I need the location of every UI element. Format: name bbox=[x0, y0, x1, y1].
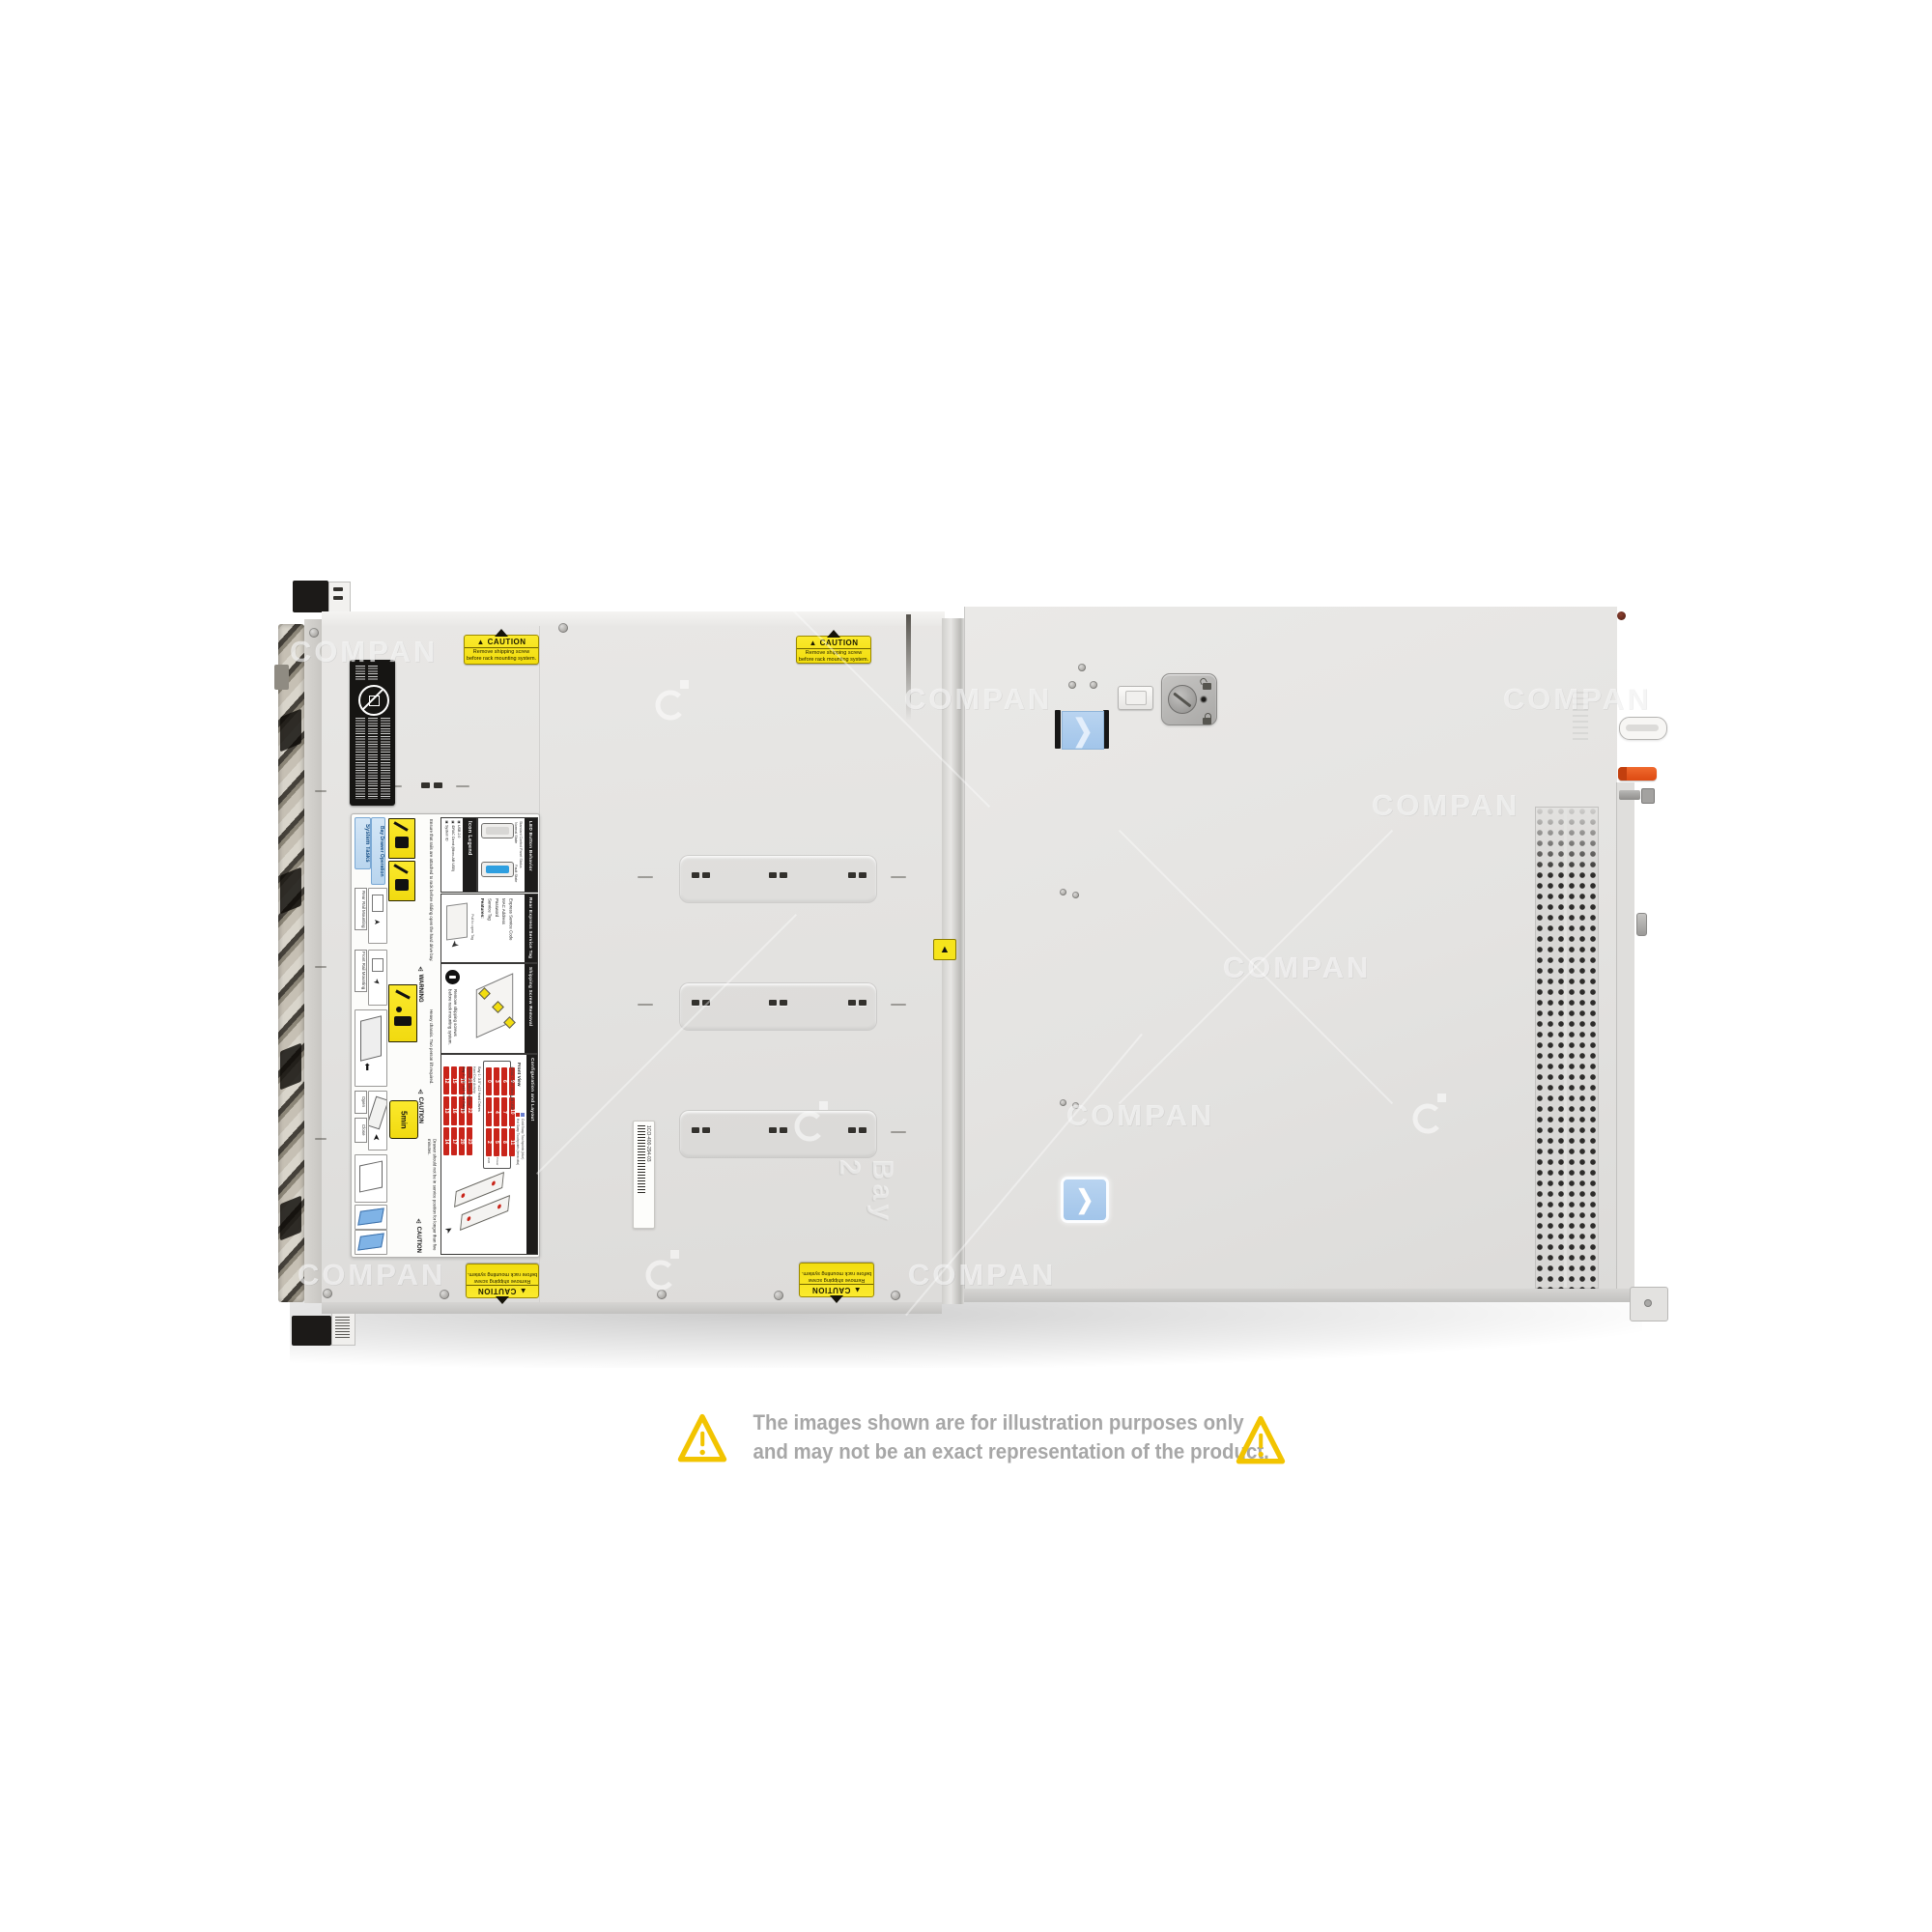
cover-screw bbox=[1078, 664, 1086, 671]
warning-triangle-icon: ▲ bbox=[476, 638, 484, 646]
sticker-pointer bbox=[496, 1296, 509, 1304]
drawer-release-latch: ❯ bbox=[1055, 708, 1109, 751]
step-art: ⬆ bbox=[355, 1009, 387, 1087]
rear-tag-header: Rear Express Service Tag bbox=[525, 895, 537, 962]
bezel-gap bbox=[280, 1196, 301, 1241]
config-side-label: Hard Drive Activity bbox=[472, 1066, 476, 1155]
chevron-right-icon: ❯ bbox=[1072, 712, 1094, 748]
drive-number-cell: 17 bbox=[451, 1127, 457, 1155]
latch-button-blue: ❯ bbox=[1062, 711, 1104, 750]
rack-ear-top bbox=[293, 581, 328, 612]
drive-number-cell: 3 bbox=[494, 1067, 499, 1095]
drive-number-cell: 15 bbox=[451, 1066, 457, 1094]
bezel-latch bbox=[274, 665, 289, 690]
cover-screw bbox=[1068, 681, 1076, 689]
bay1-label: Bay 1: 3.5" x12 Hard Drives bbox=[477, 1066, 481, 1155]
barcode-lines bbox=[638, 1125, 645, 1193]
drive-number-cell: 1 bbox=[486, 1097, 492, 1125]
config-side-label: System ID/Status Light Bar bbox=[468, 1066, 471, 1155]
watermark-text: COMPAN bbox=[298, 1258, 445, 1293]
cover-release-button: ❯ bbox=[1061, 1177, 1109, 1223]
watermark-ci-logo bbox=[792, 1099, 831, 1146]
cover-bottom-wall bbox=[964, 1289, 1634, 1302]
config-side-label: USB bbox=[487, 1157, 491, 1167]
front-bezel bbox=[278, 624, 304, 1302]
icon-legend-items: ▣ System ID▣ iDRAC Direct (Micro-AB USB)… bbox=[443, 820, 461, 890]
caution-sticker-flipped: ▲ CAUTION Remove shipping screwbefore ra… bbox=[799, 1263, 874, 1297]
config-iso-sketch: ➤ bbox=[445, 1173, 513, 1248]
step-art: ➤ bbox=[368, 888, 387, 944]
lid-hinge-gap bbox=[942, 618, 964, 1304]
five-min-badge: 5min bbox=[389, 1100, 418, 1139]
lid-slot-pair bbox=[434, 782, 442, 788]
section-shipping-screw: Remove shipping screws before rack mount… bbox=[440, 963, 538, 1054]
drive-number-cell: 13 bbox=[443, 1096, 449, 1124]
bay1-panel: 01234567891011 USB Power bbox=[483, 1061, 511, 1169]
warning-triangle-icon bbox=[676, 1408, 728, 1470]
led-bar-blue bbox=[481, 862, 514, 877]
cover-slider-latch bbox=[1118, 686, 1153, 710]
config-side-label: Power bbox=[496, 1157, 499, 1167]
screw bbox=[774, 1291, 783, 1300]
watermark-text: COMPAN bbox=[1066, 1098, 1214, 1133]
cover-screw bbox=[1072, 892, 1079, 898]
regulatory-label bbox=[350, 660, 395, 806]
lid-dash bbox=[315, 1138, 327, 1140]
led-bar-normal bbox=[481, 823, 514, 838]
padlock-unlocked-icon bbox=[1203, 683, 1211, 690]
prohibition-circle-icon bbox=[358, 685, 389, 716]
vent-slot-row bbox=[638, 855, 918, 901]
section-icon-legend: ▣ System ID▣ iDRAC Direct (Micro-AB USB)… bbox=[440, 817, 477, 893]
rear-vent-grid bbox=[1535, 807, 1599, 1289]
label-header-system-tasks: System Tasks bbox=[355, 817, 371, 869]
config-front-view: Front View bbox=[516, 1063, 521, 1111]
bezel-gap bbox=[280, 867, 301, 915]
service-instruction-label: System Tasks Bay Drawer Operation Rear R… bbox=[351, 813, 540, 1258]
step-open: Open bbox=[355, 1091, 367, 1114]
warning-triangle-icon: ▲ bbox=[519, 1287, 526, 1295]
drive-number-cell: 5 bbox=[494, 1128, 499, 1156]
shipping-sketch bbox=[469, 970, 521, 1047]
product-photo-canvas: ▲ CAUTION Remove shipping screwbefore ra… bbox=[0, 0, 1932, 1932]
icon-legend-item: ▣ System ID bbox=[443, 820, 448, 890]
hot-swap-swatch bbox=[516, 1113, 520, 1117]
psu-handle bbox=[1619, 717, 1667, 740]
pinch-hazard-icon bbox=[388, 818, 415, 859]
rack-ear-bottom bbox=[292, 1316, 331, 1346]
chevron-right-icon: ❯ bbox=[1076, 1184, 1094, 1214]
shipping-header: Shipping Screw Removal bbox=[525, 964, 537, 1053]
caution-sticker: ▲ CAUTION Remove shipping screwbefore ra… bbox=[464, 635, 539, 665]
section-led-behavior: Normal State Fault State Standard Contro… bbox=[477, 817, 538, 893]
keylock-screw bbox=[1168, 685, 1197, 714]
watermark-text: COMPAN bbox=[904, 682, 1052, 717]
warning-triangle-icon: ▲ bbox=[940, 944, 951, 955]
label-header-bay-drawer: Bay Drawer Operation bbox=[371, 817, 385, 885]
icon-legend-header: Icon Legend bbox=[463, 818, 476, 892]
rear-bracket-foot bbox=[1630, 1287, 1668, 1321]
vent-slot-row bbox=[638, 982, 918, 1029]
warning-triangle-icon: ▲ bbox=[853, 1286, 861, 1294]
drive-number-cell: 7 bbox=[501, 1097, 507, 1125]
shipping-body: Remove shipping screws before rack mount… bbox=[447, 989, 458, 1049]
config-side-label: iDRAC Direct (Micro-AB USB) bbox=[510, 1066, 514, 1155]
cover-screw bbox=[1090, 681, 1097, 689]
watermark-ci-logo bbox=[653, 678, 692, 724]
cover-keylock bbox=[1161, 673, 1217, 725]
drive-number-cell: 8 bbox=[501, 1128, 507, 1156]
step-art-drawer-blue bbox=[355, 1230, 387, 1255]
cover-screw bbox=[1060, 889, 1066, 895]
step-rear-rail: Rear Rail Mounting bbox=[355, 888, 367, 930]
tag-sketch: ➤ bbox=[444, 900, 469, 956]
lid-dash bbox=[456, 785, 469, 787]
step-art: ➤ bbox=[368, 950, 387, 1006]
step-art bbox=[355, 1154, 387, 1203]
led-state-fault: Fault State bbox=[514, 865, 518, 892]
warning-triangle-icon bbox=[1235, 1410, 1287, 1472]
padlock-locked-icon bbox=[1203, 718, 1211, 724]
config-header: Configuration and Layout bbox=[526, 1055, 537, 1254]
tag-features: Features: Service Tag Password MAC Addre… bbox=[480, 898, 523, 958]
icon-legend-item: ▣ USB 2.0 bbox=[456, 820, 461, 890]
led-subtitle: Standard Control Panel Status bbox=[519, 821, 523, 891]
section-rear-tag: ➤ Pull to open Tag Features: Service Tag… bbox=[440, 894, 538, 963]
pinch-hazard-icon bbox=[388, 861, 415, 901]
screw bbox=[891, 1291, 900, 1300]
drive-number-cell: 16 bbox=[451, 1096, 457, 1124]
embossed-bay2-text: Bay 2 bbox=[833, 1159, 898, 1256]
watermark-ci-logo bbox=[643, 1248, 682, 1294]
tag-note: Pull to open Tag bbox=[470, 914, 474, 952]
cover-screw bbox=[1060, 1099, 1066, 1106]
label-caution-heavy-text: ⚠ CAUTION Heavy chassis. Two person lift… bbox=[417, 1008, 440, 1127]
bezel-gap bbox=[280, 709, 301, 753]
rear-metal-latch bbox=[1619, 788, 1654, 803]
chassis-top-wall bbox=[322, 611, 945, 627]
config-legend: Hot Swap Touchpoints (terracotta) Cold S… bbox=[516, 1113, 526, 1248]
keylock-pinhole bbox=[1200, 696, 1207, 703]
disclaimer-line2: and may not be an exact representation o… bbox=[753, 1437, 1203, 1466]
drive-number-cell: 2 bbox=[486, 1128, 492, 1156]
step-art: ➤ bbox=[368, 1091, 387, 1151]
lid-slot-pair bbox=[421, 782, 430, 788]
small-hazard-sticker: ▲ bbox=[933, 939, 956, 960]
led-header: LED Button Behavior bbox=[525, 818, 537, 892]
bay2-label: Bay 2: 3.5" x12 Hard Drives bbox=[462, 1066, 466, 1155]
heavy-lift-hazard-icon bbox=[388, 984, 417, 1042]
watermark-text: COMPAN bbox=[1503, 682, 1651, 717]
lid-dash bbox=[315, 790, 327, 792]
watermark-ci-logo bbox=[1410, 1092, 1449, 1138]
drive-number-cell: 6 bbox=[501, 1067, 507, 1095]
sticker-pointer bbox=[830, 1295, 843, 1303]
drive-number-cell: 0 bbox=[486, 1067, 492, 1095]
chassis-bottom-wall bbox=[322, 1302, 942, 1314]
step-close: Close bbox=[355, 1118, 367, 1143]
step-front-rail: Front Rail Mounting bbox=[355, 950, 367, 992]
label-caution-drawer-text: ⚠ CAUTION Drawer should not be in servic… bbox=[415, 1137, 440, 1255]
sticker-pointer bbox=[827, 630, 840, 638]
vent-slot-row bbox=[638, 1110, 918, 1156]
bay2-drive-grid: 121314151617181920212223 bbox=[443, 1066, 460, 1155]
screw bbox=[558, 623, 568, 633]
barcode-text: 1CO-400-294-03 bbox=[645, 1125, 651, 1222]
watermark-text: COMPAN bbox=[1372, 788, 1520, 823]
rack-ear-bottom-label bbox=[331, 1312, 355, 1346]
drive-number-cell: 4 bbox=[494, 1097, 499, 1125]
bezel-backing bbox=[304, 619, 323, 1303]
caution-sticker-flipped: ▲ CAUTION Remove shipping screwbefore ra… bbox=[466, 1264, 539, 1298]
stop-hand-icon bbox=[445, 970, 460, 984]
sticker-pointer bbox=[495, 629, 508, 637]
cold-swap-swatch bbox=[521, 1113, 525, 1117]
barcode-sticker: 1CO-400-294-03 bbox=[633, 1121, 655, 1229]
rack-ear-top-bracket bbox=[328, 582, 351, 613]
lid-dash bbox=[315, 966, 327, 968]
watermark-text: COMPAN bbox=[290, 635, 438, 669]
warning-triangle-icon: ▲ bbox=[809, 639, 816, 647]
rear-wall bbox=[1616, 782, 1634, 1289]
bay1-drive-grid: 01234567891011 bbox=[486, 1067, 507, 1156]
label-warning-text: ⚠ WARNING Ensure that rails are attached… bbox=[417, 817, 440, 1005]
led-state-normal: Normal State bbox=[514, 822, 518, 861]
disclaimer-line1: The images shown are for illustration pu… bbox=[753, 1408, 1203, 1437]
drive-number-cell: 12 bbox=[443, 1066, 449, 1094]
section-config-layout: 121314151617181920212223 Bay 2: 3.5" x12… bbox=[440, 1054, 538, 1255]
server-top-view: ▲ CAUTION Remove shipping screwbefore ra… bbox=[0, 0, 1932, 1932]
rear-edge-screw bbox=[1636, 913, 1647, 936]
screw bbox=[1617, 611, 1626, 620]
drive-number-cell: 14 bbox=[443, 1127, 449, 1155]
bezel-gap bbox=[280, 1043, 301, 1091]
disclaimer-text: The images shown are for illustration pu… bbox=[753, 1408, 1203, 1466]
step-art-drawer-blue bbox=[355, 1205, 387, 1230]
icon-legend-item: ▣ iDRAC Direct (Micro-AB USB) bbox=[449, 820, 454, 890]
release-lever-orange bbox=[1618, 767, 1657, 781]
